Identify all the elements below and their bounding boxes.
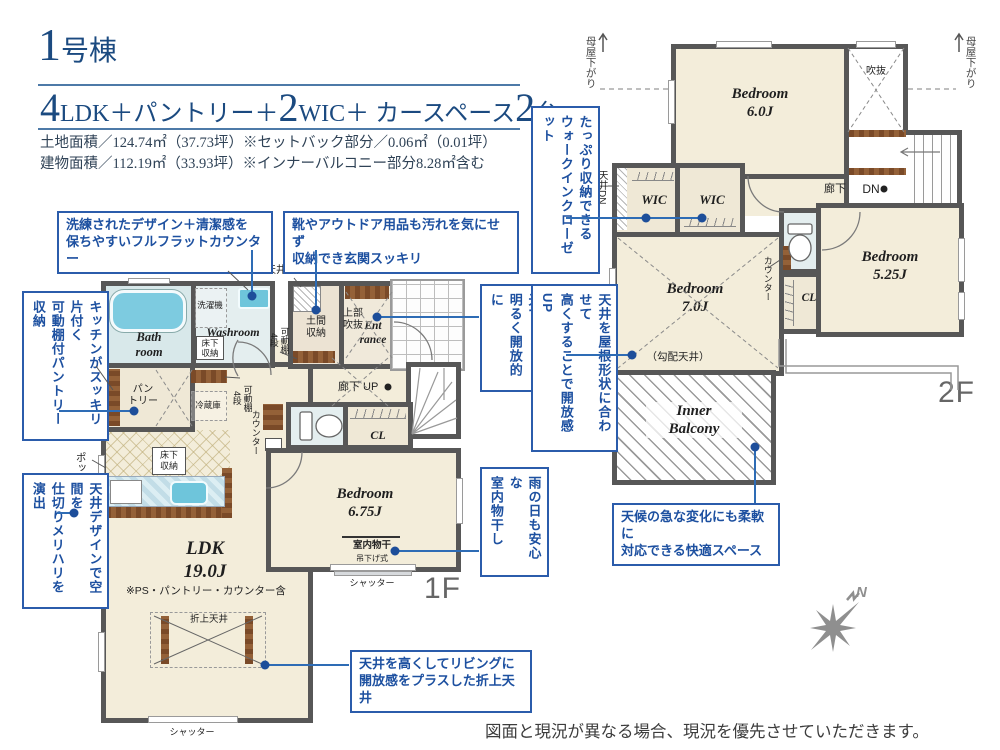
oriage-label: 折上天井 bbox=[184, 614, 234, 625]
stove bbox=[110, 480, 142, 504]
ceiling-down-hatch-1f bbox=[293, 286, 321, 312]
callout-balcony: 天候の急な変化にも柔軟に 対応できる快適スペース bbox=[612, 503, 780, 566]
closet-rod-1f bbox=[350, 409, 406, 419]
window-bath-n bbox=[128, 278, 170, 284]
window-ldk-w2 bbox=[98, 632, 105, 672]
window-ldk-south bbox=[148, 716, 238, 723]
floor-label-2f: 2F bbox=[938, 376, 975, 410]
pantry-label: パン トリー bbox=[124, 384, 162, 408]
bathtub bbox=[110, 290, 186, 332]
counter-1f bbox=[263, 404, 283, 430]
building-area: 建物面積／112.19㎡（33.93坪）※インナーバルコニー部分8.28㎡含む bbox=[40, 156, 485, 172]
kitchen-counter-edge bbox=[106, 506, 232, 518]
inner-balcony-label: Inner Balcony bbox=[646, 402, 742, 438]
kitchen-sink bbox=[170, 481, 208, 505]
callout-pantry: キッチンがスッキリ片付く 可動棚付パントリー収納 bbox=[22, 291, 109, 441]
ldk-label: LDK 19.0J bbox=[150, 538, 260, 584]
stairs-rail-mid bbox=[849, 168, 906, 175]
bedroom-675-label: Bedroom 6.75J bbox=[310, 485, 420, 521]
wic1-label: WIC bbox=[634, 192, 674, 208]
disclaimer-text: 図面と現況が異なる場合、現況を優先させていただきます。 bbox=[485, 718, 929, 742]
callout-ceiling-design: 天井デザインで空間を 仕切りメリハリを演出 bbox=[22, 473, 109, 609]
shelf-label-b: 可動棚 4段 bbox=[268, 316, 290, 364]
divider-bottom bbox=[38, 128, 520, 130]
counter-2f bbox=[783, 246, 791, 270]
bathroom-label: Bath room bbox=[118, 330, 180, 360]
oriage-beam-left bbox=[161, 616, 169, 664]
wic2-label: WIC bbox=[692, 192, 732, 208]
compass-icon bbox=[810, 593, 859, 652]
void-label: 吹抜 bbox=[856, 66, 896, 78]
closet-label-1f: CL bbox=[365, 428, 391, 442]
window-bedroom-1f bbox=[330, 564, 416, 571]
window-bedroom-e bbox=[456, 478, 463, 524]
hallway-up-label: 廊下 UP bbox=[338, 381, 394, 394]
slope-ceiling-note: （勾配天井） bbox=[640, 351, 716, 364]
callout-flat-counter: 洗練されたデザイン＋清潔感を 保ちやすいフルフラットカウンター bbox=[57, 211, 273, 274]
callout-genkan: 靴やアウトドア用品も汚れを気にせず 収納でき玄関スッキリ bbox=[283, 211, 519, 274]
entrance-porch bbox=[390, 279, 465, 371]
wic1-rod bbox=[632, 172, 674, 181]
room-toilet-1f bbox=[286, 402, 348, 450]
fridge-label: 冷蔵庫 bbox=[192, 400, 224, 410]
floorplan-sheet: 1号棟 4LDK＋パントリー＋2WIC＋ カースペース2台 土地面積／124.7… bbox=[0, 0, 1000, 750]
window-bed6-n bbox=[716, 41, 772, 48]
plan-summary: 4LDK＋パントリー＋2WIC＋ カースペース2台 bbox=[40, 88, 559, 128]
void-2f bbox=[844, 44, 908, 136]
floor-label-1f: 1F bbox=[424, 572, 461, 606]
page-title: 1号棟 bbox=[38, 22, 117, 69]
monohoshi-sub: 吊下げ式 bbox=[352, 554, 392, 564]
bedroom-60-label: Bedroom 6.0J bbox=[705, 85, 815, 121]
dn-label: DN bbox=[856, 182, 886, 196]
stairs-1f bbox=[406, 362, 461, 439]
washer-label: 洗濯機 bbox=[195, 300, 225, 310]
shelf-label-c: 可動棚 4段 bbox=[231, 374, 253, 422]
ldk-note: ※PS・パントリー・カウンター含 bbox=[126, 585, 276, 598]
underfloor-storage-kitchen: 床下 収納 bbox=[152, 447, 186, 475]
shoe-shelf bbox=[345, 286, 389, 299]
shutter-bedroom-strip bbox=[334, 571, 412, 576]
callout-indoor-drying: 雨の日も安心な 室内物干し bbox=[480, 467, 549, 577]
roof-band bbox=[779, 339, 958, 390]
stairs-2f-treads bbox=[906, 135, 957, 207]
doma-shelf bbox=[293, 351, 335, 363]
sanitary-counter bbox=[238, 288, 270, 309]
stairs-rail-top bbox=[849, 130, 906, 137]
shutter-ldk-label: シャッター bbox=[166, 727, 218, 738]
counter-label-2f: カウンター bbox=[762, 252, 773, 304]
ceiling-down-hatch-2f bbox=[617, 168, 627, 230]
window-bed525-e2 bbox=[958, 292, 965, 320]
hallway-2f-label: 廊下 bbox=[818, 183, 852, 196]
moya-right-label: 母屋下がり bbox=[964, 28, 977, 96]
area-info: 土地面積／124.74㎡（37.73坪）※セットバック部分／0.06㎡（0.01… bbox=[40, 133, 497, 175]
building-number: 1 bbox=[38, 19, 61, 70]
window-bed525-e1 bbox=[958, 238, 965, 282]
closet-rod-2f bbox=[785, 280, 794, 326]
oriage-beam-right bbox=[245, 616, 253, 664]
window-void-n bbox=[856, 41, 896, 48]
callout-oriage: 天井を高くしてリビングに 開放感をプラスした折上天井 bbox=[350, 650, 532, 713]
shelf-under-washroom bbox=[191, 370, 227, 383]
callout-wic: たっぷり収納できる ウォークインクローゼット bbox=[531, 106, 600, 274]
callout-sloped-ceiling: 天井を屋根形状に合わせて 高くすることで開放感UP bbox=[531, 284, 618, 452]
wic2-rod bbox=[684, 218, 736, 227]
entrance-label: Ent rance bbox=[355, 320, 391, 348]
bedroom-70-label: Bedroom 7.0J bbox=[640, 280, 750, 316]
monohoshi-label: 室内物干 bbox=[346, 540, 398, 551]
moya-left-label: 母屋下がり bbox=[584, 28, 597, 96]
compass-north-label: N bbox=[856, 584, 867, 601]
window-bed6-w bbox=[668, 80, 675, 124]
doma-label: 土間 収納 bbox=[296, 316, 336, 340]
shutter-bedroom-label: シャッター bbox=[346, 578, 398, 589]
underfloor-storage-wash: 床下 収納 bbox=[196, 336, 224, 360]
land-area: 土地面積／124.74㎡（37.73坪）※セットバック部分／0.06㎡（0.01… bbox=[40, 135, 497, 151]
bedroom-525-label: Bedroom 5.25J bbox=[835, 248, 945, 284]
